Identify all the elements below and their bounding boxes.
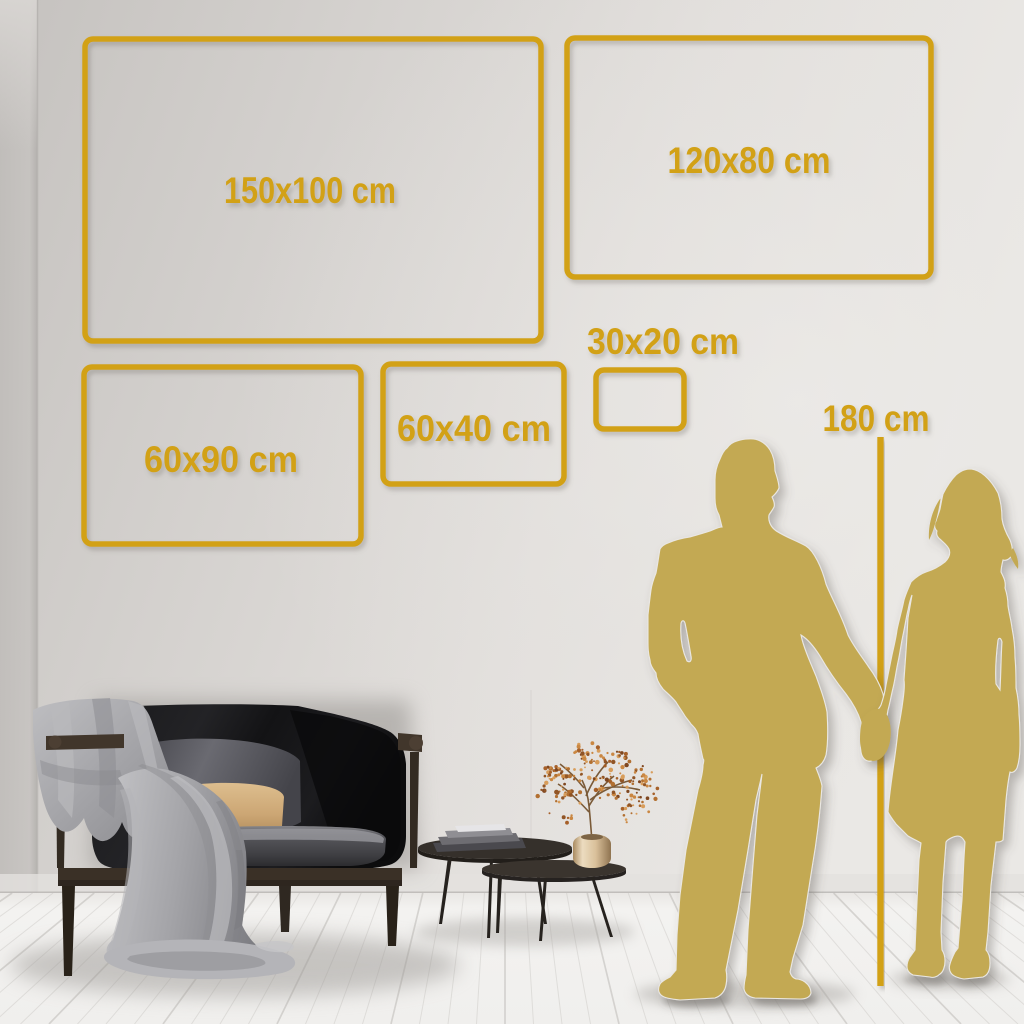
svg-text:120x80 cm: 120x80 cm xyxy=(668,140,831,181)
svg-text:180 cm: 180 cm xyxy=(823,398,930,439)
svg-text:150x100 cm: 150x100 cm xyxy=(224,170,396,211)
svg-text:60x90 cm: 60x90 cm xyxy=(144,439,298,480)
svg-text:30x20 cm: 30x20 cm xyxy=(587,321,739,362)
svg-text:60x40 cm: 60x40 cm xyxy=(397,408,551,449)
